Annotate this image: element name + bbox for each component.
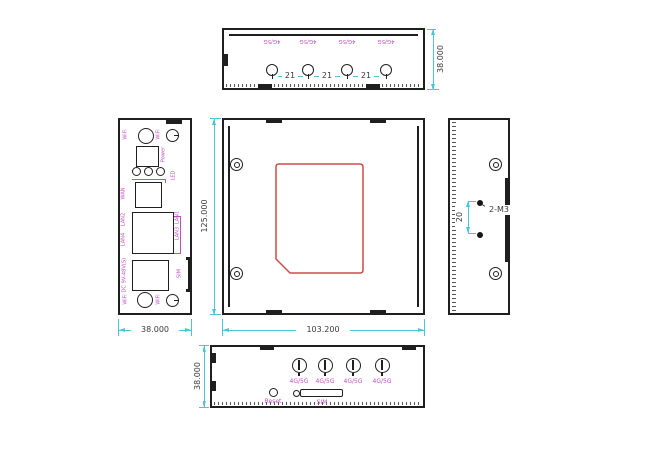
connector-keyway xyxy=(272,74,274,79)
lan-bracket xyxy=(174,216,181,217)
connector-tick xyxy=(298,373,300,376)
dim-ext-line xyxy=(424,319,425,336)
dim-arrow xyxy=(431,84,435,90)
antenna-label: 4G/5G xyxy=(295,38,322,44)
lan-bracket xyxy=(174,253,181,254)
front-height-dim: 125.000 xyxy=(200,178,210,254)
dim-line xyxy=(204,346,205,407)
lan-bracket xyxy=(180,216,181,254)
reset-label: Reset xyxy=(258,398,288,405)
pitch-dim-text: 21 xyxy=(282,71,298,81)
dim-arrow xyxy=(223,328,229,332)
dim-ext-line xyxy=(199,407,209,408)
connector-keyway xyxy=(308,74,310,79)
edge-tab xyxy=(260,347,274,350)
screw-hole-inner xyxy=(234,162,240,168)
edge-notch xyxy=(212,381,216,391)
edge-notch xyxy=(212,353,216,363)
led-bracket xyxy=(132,179,165,180)
dim-line xyxy=(433,30,434,89)
antenna-label: 4G/5G xyxy=(259,38,286,44)
dim-arrow xyxy=(466,201,470,207)
top-height-dim: 38.000 xyxy=(436,29,446,89)
antenna-connector xyxy=(341,64,353,76)
edge-tab xyxy=(166,120,182,124)
sim-label: SIM xyxy=(307,399,337,406)
side-rail xyxy=(505,178,508,262)
bottom-view: 4G/5G 4G/5G 4G/5G 4G/5G Reset SIM xyxy=(210,345,425,408)
dim-ext-line xyxy=(191,319,192,336)
edge-tab xyxy=(370,120,386,123)
wan-label: WAN xyxy=(120,182,126,204)
sim-edge-label: SIM xyxy=(176,262,182,284)
connector-tick xyxy=(352,373,354,376)
connector-slot xyxy=(324,360,326,370)
dc-label: DC 9V-48V(S) xyxy=(121,259,127,293)
front-width-dim: 103.200 xyxy=(296,325,350,335)
edge-tab xyxy=(366,84,380,88)
screw-hole-inner xyxy=(493,162,499,168)
antenna-label: 4G/5G xyxy=(373,38,400,44)
m3-mounting-hole xyxy=(477,232,483,238)
left-side-view: WiFi WiFi Power LED WAN LAN2 LAN4 LAN1 L… xyxy=(118,118,192,315)
connector-slot xyxy=(381,360,383,370)
lan-label: LAN2 xyxy=(120,208,126,230)
dim-arrow xyxy=(431,29,435,35)
screw-hole-inner xyxy=(493,271,499,277)
led-indicator xyxy=(132,167,141,176)
antenna-label: WiFi xyxy=(122,123,128,145)
hole-pitch-dim: 20 xyxy=(455,205,465,229)
antenna-label: 4G/5G xyxy=(334,38,361,44)
connector-slot xyxy=(352,360,354,370)
connector-tick xyxy=(324,373,326,376)
led-indicator xyxy=(144,167,153,176)
connector-keyway xyxy=(347,74,349,79)
antenna-label: 4G/5G xyxy=(310,378,340,385)
dim-arrow xyxy=(466,227,470,233)
wan-port xyxy=(135,182,162,208)
antenna-connector xyxy=(138,128,154,144)
antenna-label: WiFi xyxy=(122,288,128,310)
dim-arrow xyxy=(418,328,424,332)
dim-arrow xyxy=(212,119,216,125)
connector-slot xyxy=(298,360,300,370)
pitch-dim-text: 21 xyxy=(319,71,335,81)
antenna-connector xyxy=(137,292,153,308)
left-width-dim: 38.000 xyxy=(131,325,179,335)
dim-arrow xyxy=(185,328,191,332)
led-bracket xyxy=(165,179,166,183)
inner-edge-line xyxy=(229,34,418,36)
sim-slot xyxy=(300,389,343,397)
edge-tab xyxy=(370,310,386,313)
antenna-connector xyxy=(166,294,179,307)
dim-arrow xyxy=(212,309,216,315)
edge-tab xyxy=(266,310,282,313)
bottom-height-dim: 38.000 xyxy=(193,346,203,406)
antenna-label: 4G/5G xyxy=(338,378,368,385)
side-rail-notch xyxy=(186,289,192,292)
antenna-connector xyxy=(266,64,278,76)
power-label: Power xyxy=(160,143,166,165)
led-label: LED xyxy=(170,164,176,186)
power-connector xyxy=(136,146,159,167)
side-rail xyxy=(188,259,192,290)
dim-ext-line xyxy=(468,233,476,234)
antenna-label: 4G/5G xyxy=(367,378,397,385)
inner-edge-line xyxy=(417,126,419,307)
front-view xyxy=(222,118,425,315)
edge-notch xyxy=(224,54,228,66)
antenna-connector xyxy=(302,64,314,76)
antenna-connector xyxy=(380,64,392,76)
screw-hole-inner xyxy=(234,271,240,277)
antenna-label: WiFi xyxy=(155,123,161,145)
edge-tab xyxy=(258,84,272,88)
pitch-dim-text: 21 xyxy=(358,71,374,81)
connector-keyway xyxy=(386,74,388,79)
edge-tab xyxy=(266,120,282,123)
antenna-label: WiFi xyxy=(155,288,161,310)
lan-port-block xyxy=(132,212,174,254)
led-indicator xyxy=(156,167,165,176)
connector-tick xyxy=(381,373,383,376)
sim-eject-hole xyxy=(293,390,300,397)
edge-tab xyxy=(402,347,416,350)
connector-keyway xyxy=(174,135,179,137)
inner-edge-line xyxy=(228,126,230,307)
connector-keyway xyxy=(174,300,179,302)
antenna-connector xyxy=(166,129,179,142)
sim-cover-outline xyxy=(275,163,364,274)
dim-line xyxy=(214,119,215,315)
dim-arrow xyxy=(119,328,125,332)
thread-callout: 2-M3 xyxy=(485,205,513,215)
edge-hatch xyxy=(226,84,421,87)
dc-power-terminal xyxy=(132,260,169,291)
engineering-drawing: 4G/5G 4G/5G 4G/5G 4G/5G 21 21 21 38.000 … xyxy=(0,0,649,451)
reset-button xyxy=(269,388,278,397)
lan-label: LAN4 xyxy=(120,228,126,250)
